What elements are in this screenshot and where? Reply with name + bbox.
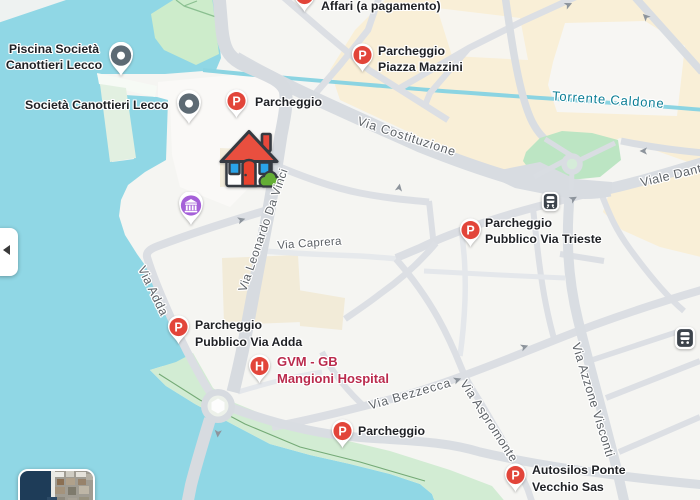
svg-text:P: P	[358, 48, 366, 62]
svg-text:P: P	[232, 94, 240, 108]
svg-text:P: P	[511, 468, 519, 482]
svg-text:P: P	[338, 424, 346, 438]
svg-text:P: P	[466, 223, 474, 237]
svg-text:P: P	[300, 0, 308, 2]
svg-text:P: P	[174, 320, 182, 334]
svg-text:H: H	[254, 359, 263, 373]
